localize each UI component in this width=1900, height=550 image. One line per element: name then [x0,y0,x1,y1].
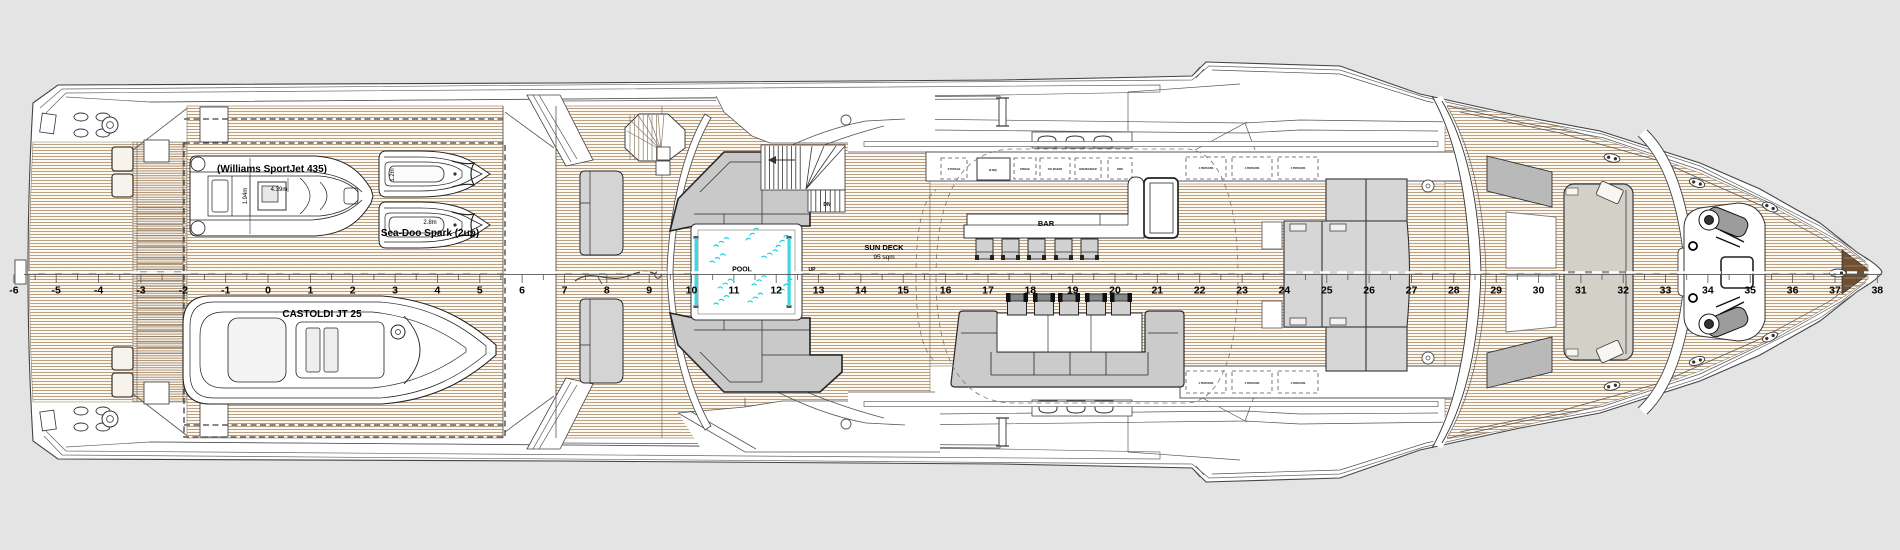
svg-text:-2: -2 [179,285,188,297]
svg-text:-5: -5 [52,285,61,297]
svg-text:30: 30 [1533,285,1545,297]
svg-text:-3: -3 [136,285,145,297]
svg-text:Sea-Doo Spark (2up): Sea-Doo Spark (2up) [381,228,479,239]
svg-text:12: 12 [770,285,782,297]
svg-text:11: 11 [728,285,739,297]
svg-text:STORAGE: STORAGE [948,167,961,171]
svg-text:9: 9 [646,285,652,297]
svg-text:17: 17 [982,285,994,297]
svg-text:14: 14 [855,285,867,297]
svg-text:16: 16 [940,285,952,297]
svg-text:1.94m: 1.94m [243,188,249,205]
svg-text:SINK: SINK [1117,167,1123,171]
svg-text:-4: -4 [94,285,103,297]
svg-text:18: 18 [1024,285,1036,297]
svg-text:FRIDGE: FRIDGE [1020,167,1030,171]
svg-text:6: 6 [519,285,525,297]
svg-text:4 PERSONS: 4 PERSONS [1199,166,1214,170]
svg-text:31: 31 [1575,285,1587,297]
svg-text:95 sqm: 95 sqm [873,254,894,261]
svg-text:21: 21 [1151,285,1163,297]
svg-text:1.2m: 1.2m [390,168,396,181]
svg-text:25: 25 [1321,285,1333,297]
svg-text:-1: -1 [221,285,230,297]
svg-text:3: 3 [392,285,398,297]
svg-text:4.39m: 4.39m [271,187,288,193]
svg-text:DISHWASHER: DISHWASHER [1079,167,1097,171]
svg-text:36: 36 [1787,285,1799,297]
svg-text:23: 23 [1236,285,1248,297]
svg-text:8: 8 [604,285,610,297]
svg-text:5: 5 [477,285,483,297]
svg-text:B BQ: B BQ [989,168,997,172]
svg-text:4: 4 [434,285,440,297]
svg-text:29: 29 [1490,285,1502,297]
svg-text:35: 35 [1744,285,1756,297]
svg-text:37: 37 [1829,285,1841,297]
svg-text:22: 22 [1194,285,1206,297]
svg-text:DN: DN [823,202,831,208]
svg-text:28: 28 [1448,285,1460,297]
svg-text:33: 33 [1660,285,1672,297]
svg-text:0: 0 [265,285,271,297]
svg-text:(Williams SportJet 435): (Williams SportJet 435) [217,164,327,175]
svg-text:ICE MAKER: ICE MAKER [1048,167,1063,171]
svg-text:2: 2 [350,285,356,297]
svg-text:34: 34 [1702,285,1714,297]
svg-text:32: 32 [1617,285,1629,297]
svg-text:15: 15 [897,285,909,297]
svg-text:2.8m: 2.8m [423,220,436,226]
svg-text:19: 19 [1067,285,1079,297]
svg-text:4 PERSONS: 4 PERSONS [1291,166,1306,170]
svg-text:1: 1 [307,285,313,297]
svg-text:20: 20 [1109,285,1121,297]
svg-text:4 PERSONS: 4 PERSONS [1245,166,1260,170]
svg-text:CASTOLDI JT 25: CASTOLDI JT 25 [282,309,362,320]
svg-text:26: 26 [1363,285,1375,297]
svg-text:4 PERSONS: 4 PERSONS [1199,381,1214,385]
svg-text:10: 10 [686,285,698,297]
svg-text:27: 27 [1406,285,1418,297]
svg-text:-6: -6 [9,285,18,297]
svg-text:4 PERSONS: 4 PERSONS [1291,381,1306,385]
svg-text:SUN DECK: SUN DECK [864,243,904,252]
svg-text:BAR: BAR [1038,219,1055,228]
svg-text:7: 7 [562,285,568,297]
svg-text:13: 13 [813,285,825,297]
svg-text:4 PERSONS: 4 PERSONS [1245,381,1260,385]
svg-text:24: 24 [1279,285,1291,297]
svg-text:38: 38 [1871,285,1883,297]
